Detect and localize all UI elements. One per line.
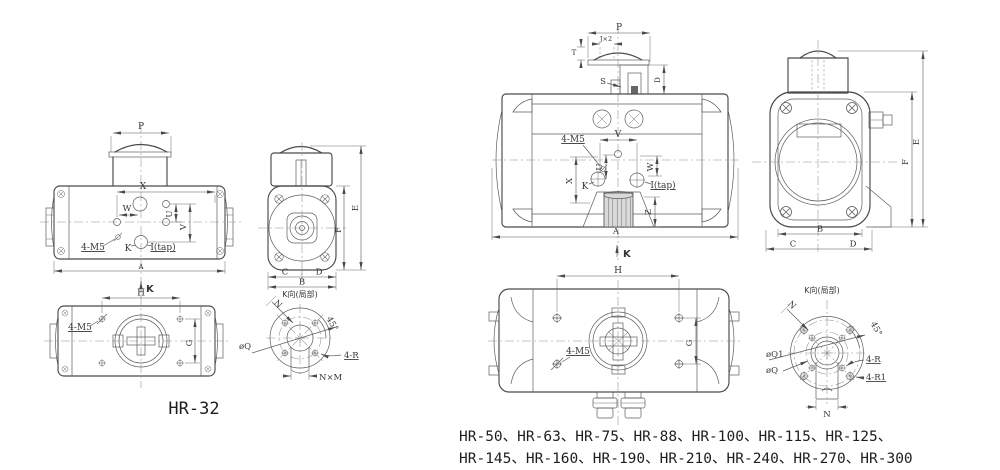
label-itap: I(tap) [150,242,175,253]
hr32-front-view: X W U V 4-M5 K I(tap) A K [40,182,243,295]
view-arrow-k2-label: K [623,249,632,260]
dim-n-label: N [271,298,284,311]
hr-large-front-view: V U X W 4-M5 K I(tap) [492,94,742,260]
label-4r2: 4-R [866,355,881,365]
dim-x-label: X [140,182,147,192]
dim-p2-label: P [616,23,622,33]
dim-z-label: Z [644,209,654,215]
dim-b2-label: B [817,225,823,235]
model-caption-right-line2: HR-145、HR-160、HR-190、HR-210、HR-240、HR-27… [459,451,913,467]
label-itap2: I(tap) [650,180,675,191]
dim-e2-label: E [912,139,922,145]
dim-n2-label: N [785,299,798,312]
dim-p-label: P [138,122,144,132]
hr-large-side-view: E F B C D [752,40,928,252]
actuator-dimension-drawing: P X W U [0,0,1000,470]
dim-oq2-label: øQ [766,366,778,376]
dim-jx2-label: J×2 [599,35,612,43]
dim-v-label: V [179,223,189,231]
dim-h2-label: H [614,266,622,276]
hr-large-k-detail-view: K向(局部) N 45° øQ1 øQ 4-R 4-R1 [766,285,886,420]
dim-u-label: U [165,210,175,217]
hr32-k-detail-view: K向(局部) N 45° øQ 4-R N×M [239,289,359,383]
view-arrow-k-label: K [146,284,155,295]
hr-large-bottom-view: 4-M5 H G [488,266,742,425]
hr32-side-view: F E C D B [258,142,366,290]
dim-nxm-label: N×M [319,373,343,383]
dim-a-label: A [137,263,144,271]
dim-d-label: D [316,268,323,278]
dim-c-label: C [282,268,289,278]
dim-e-label: E [351,205,361,211]
dim-oq-label: øQ [239,342,251,352]
label-4m5-bottom: 4-M5 [68,323,92,333]
label-4m5: 4-M5 [81,243,105,253]
hr32-top-cap-view: P [109,122,171,298]
dim-d2-label: D [654,77,662,83]
dim-oq1-label: øQ1 [766,350,784,360]
dim-g2-label: G [685,339,695,346]
dim-s-label: S [600,77,606,87]
k-view-title: K向(局部) [282,289,318,299]
label-4m5-bottom2: 4-M5 [566,347,590,357]
dim-45deg2-label: 45° [868,320,884,338]
dim-h-label: H [137,289,145,299]
hr32-bottom-view: 4-M5 H G [44,289,229,389]
label-4r: 4-R [344,351,359,361]
dim-f2-label: F [901,159,911,165]
dim-b-label: B [299,278,305,288]
model-caption-left: HR-32 [168,399,219,419]
dim-g-label: G [185,339,195,346]
technical-drawing-page: P X W U [0,0,1000,470]
dim-a2-label: A [612,227,620,237]
label-4r1: 4-R1 [866,373,886,383]
label-k: K [125,244,132,254]
dim-d3-label: D [850,240,857,250]
model-caption-right-line1: HR-50、HR-63、HR-75、HR-88、HR-100、HR-115、HR… [459,429,892,445]
dim-c2-label: C [790,240,797,250]
dim-x2-label: X [565,177,575,184]
dim-w2-label: W [646,162,656,171]
dim-t-label: T [572,49,577,57]
dim-w-label: W [123,204,132,214]
dim-f-label: F [334,227,344,233]
k-view-title2: K向(局部) [804,285,840,295]
label-4m5-front: 4-M5 [561,135,585,145]
dim-v2-label: V [614,130,622,140]
label-k2: K [582,182,589,192]
dim-n-bottom-label: N [823,410,831,420]
